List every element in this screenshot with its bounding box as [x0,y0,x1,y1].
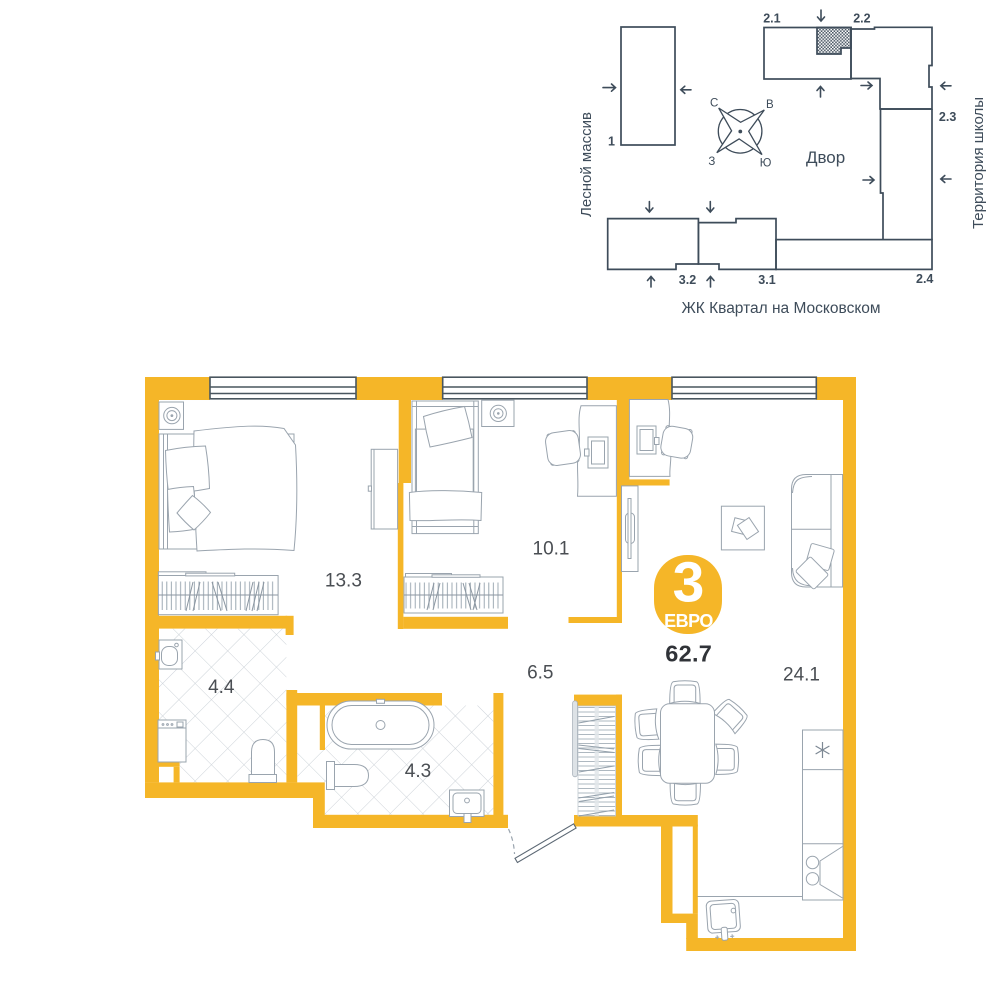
svg-text:2.2: 2.2 [853,11,870,25]
svg-text:В: В [766,99,774,111]
svg-text:2.4: 2.4 [916,272,933,286]
svg-text:С: С [710,97,718,109]
svg-text:Двор: Двор [806,148,845,167]
svg-text:2.1: 2.1 [763,11,780,25]
svg-text:ЖК Квартал на Московском: ЖК Квартал на Московском [681,300,880,317]
svg-text:3.2: 3.2 [679,273,696,287]
svg-text:2.3: 2.3 [939,110,956,124]
svg-text:Территория школы: Территория школы [970,97,987,229]
svg-text:62.7: 62.7 [665,641,712,667]
svg-text:3.1: 3.1 [758,273,775,287]
svg-text:Ю: Ю [760,157,772,169]
svg-text:ЕВРО: ЕВРО [664,611,713,631]
svg-text:Лесной массив: Лесной массив [578,112,595,217]
svg-text:4.3: 4.3 [405,761,431,782]
svg-text:24.1: 24.1 [783,665,820,686]
svg-text:6.5: 6.5 [527,663,553,684]
svg-text:4.4: 4.4 [208,677,235,698]
svg-text:13.3: 13.3 [325,570,362,591]
svg-text:3: 3 [673,551,705,615]
svg-text:З: З [708,156,715,168]
svg-text:10.1: 10.1 [533,539,570,560]
svg-text:1: 1 [608,134,615,148]
